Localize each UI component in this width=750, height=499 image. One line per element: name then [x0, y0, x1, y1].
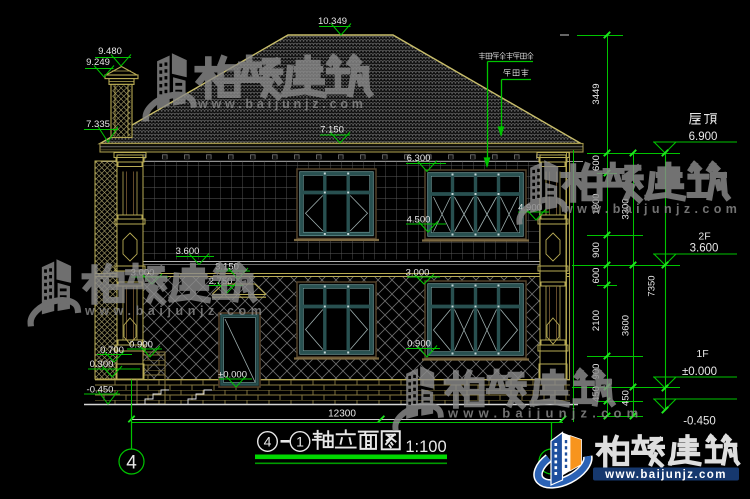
svg-text:7.335: 7.335	[86, 119, 110, 130]
svg-text:900: 900	[591, 242, 602, 258]
svg-text:4: 4	[264, 434, 272, 450]
svg-text:3.600: 3.600	[176, 246, 200, 257]
svg-text:9.249: 9.249	[86, 57, 110, 68]
svg-text:12300: 12300	[328, 409, 356, 420]
svg-text:1:100: 1:100	[405, 438, 446, 456]
svg-text:0.300: 0.300	[90, 359, 114, 370]
svg-text:600: 600	[591, 268, 602, 284]
svg-text:0.900: 0.900	[407, 339, 431, 350]
svg-text:4: 4	[126, 453, 137, 474]
svg-text:www.baijunjz.com: www.baijunjz.com	[604, 469, 727, 481]
svg-text:6.900: 6.900	[689, 131, 718, 143]
svg-text:2100: 2100	[591, 310, 602, 331]
svg-text:0.700: 0.700	[100, 345, 124, 356]
svg-text:www.baijunjz.com: www.baijunjz.com	[84, 304, 266, 318]
svg-text:1: 1	[296, 434, 304, 450]
svg-text:1F: 1F	[696, 348, 708, 360]
svg-text:2F: 2F	[698, 231, 710, 243]
svg-text:0.900: 0.900	[129, 340, 153, 351]
svg-text:-0.450: -0.450	[87, 385, 114, 396]
svg-text:7.150: 7.150	[320, 125, 344, 136]
svg-text:3.000: 3.000	[406, 268, 430, 279]
svg-text:3.600: 3.600	[690, 243, 719, 255]
svg-text:7350: 7350	[647, 275, 658, 296]
svg-text:www.baijunjz.com: www.baijunjz.com	[447, 406, 643, 421]
svg-text:4.500: 4.500	[407, 215, 431, 226]
svg-text:www.baijunjz.com: www.baijunjz.com	[197, 97, 367, 111]
svg-text:450: 450	[621, 390, 632, 406]
svg-text:-0.450: -0.450	[683, 416, 716, 428]
svg-text:±0.000: ±0.000	[218, 370, 247, 381]
svg-text:±0.000: ±0.000	[682, 366, 717, 378]
svg-text:9.480: 9.480	[98, 46, 122, 57]
svg-text:6.300: 6.300	[407, 153, 431, 164]
svg-text:600: 600	[591, 155, 602, 171]
svg-text:10.349: 10.349	[318, 16, 347, 27]
svg-text:3449: 3449	[591, 83, 602, 104]
svg-text:3600: 3600	[621, 315, 632, 336]
svg-text:www.baijunjz.com: www.baijunjz.com	[562, 202, 741, 216]
